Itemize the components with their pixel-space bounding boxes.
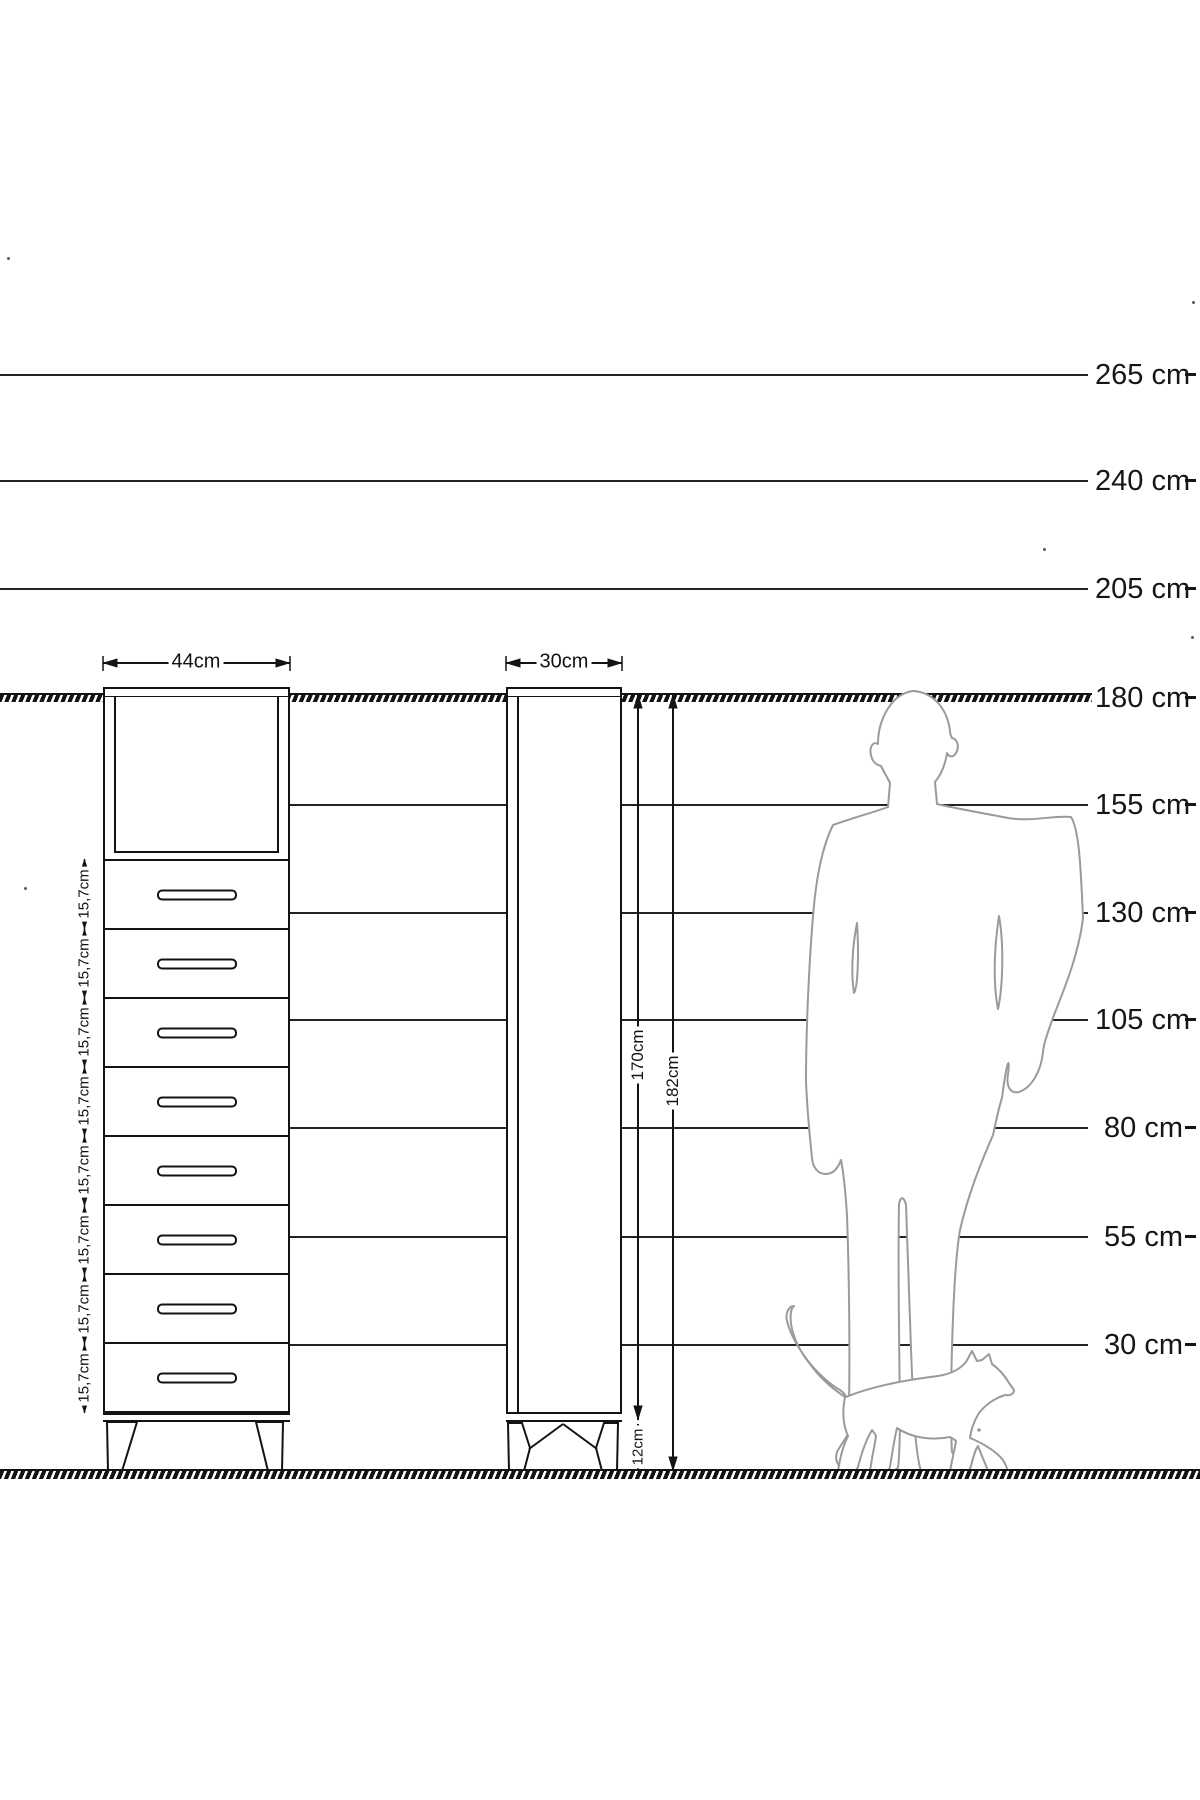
scale-tick-80 — [1185, 1126, 1196, 1129]
scale-tick-155 — [1185, 803, 1196, 806]
side-front-leg — [508, 1423, 530, 1471]
drawer-dim-3: 15,7cm — [75, 1004, 94, 1059]
scale-label-30: 30 cm — [1095, 1327, 1183, 1363]
scale-tick-265 — [1185, 373, 1196, 376]
speck — [1043, 548, 1046, 551]
drawer-dim-7: 15,7cm — [75, 1281, 94, 1336]
scale-tick-130 — [1185, 911, 1196, 914]
leg-height-label: 12cm — [629, 1426, 648, 1469]
side-leg-brace — [529, 1424, 597, 1449]
cat-speck — [977, 1428, 980, 1431]
scale-tick-30 — [1185, 1343, 1196, 1346]
drawer-dim-1: 15,7cm — [75, 866, 94, 921]
scale-tick-105 — [1185, 1018, 1196, 1021]
furniture-dimension-diagram: 265 cm 240 cm 205 cm 180 cm 155 cm 130 c… — [0, 0, 1200, 1800]
scale-label-205: 205 cm — [1095, 571, 1183, 607]
scale-label-105: 105 cm — [1095, 1002, 1183, 1038]
diagram-overlay — [0, 0, 1200, 1800]
scale-label-130: 130 cm — [1095, 895, 1183, 931]
front-left-leg — [107, 1422, 137, 1471]
front-width-label: 44cm — [169, 651, 224, 674]
scale-label-240: 240 cm — [1095, 463, 1183, 499]
scale-label-155: 155 cm — [1095, 787, 1183, 823]
speck — [24, 887, 27, 890]
scale-tick-240 — [1185, 479, 1196, 482]
body-height-label: 170cm — [627, 1026, 649, 1083]
front-right-leg — [256, 1422, 283, 1471]
scale-tick-180 — [1185, 696, 1196, 699]
scale-label-265: 265 cm — [1095, 357, 1183, 393]
drawer-dim-5: 15,7cm — [75, 1142, 94, 1197]
total-height-label: 182cm — [662, 1052, 684, 1109]
scale-tick-205 — [1185, 587, 1196, 590]
drawer-dim-6: 15,7cm — [75, 1212, 94, 1267]
ground-line — [0, 1469, 1200, 1479]
speck — [1191, 636, 1194, 639]
drawer-dim-8: 15,7cm — [75, 1350, 94, 1405]
man-silhouette — [806, 691, 1083, 1471]
scale-label-55: 55 cm — [1095, 1219, 1183, 1255]
speck — [1192, 301, 1195, 304]
side-width-label: 30cm — [537, 651, 592, 674]
scale-label-180: 180 cm — [1095, 680, 1183, 716]
speck — [7, 257, 10, 260]
drawer-dim-4: 15,7cm — [75, 1073, 94, 1128]
scale-tick-55 — [1185, 1235, 1196, 1238]
scale-label-80: 80 cm — [1095, 1110, 1183, 1146]
side-back-leg — [596, 1423, 618, 1471]
drawer-dim-2: 15,7cm — [75, 935, 94, 990]
